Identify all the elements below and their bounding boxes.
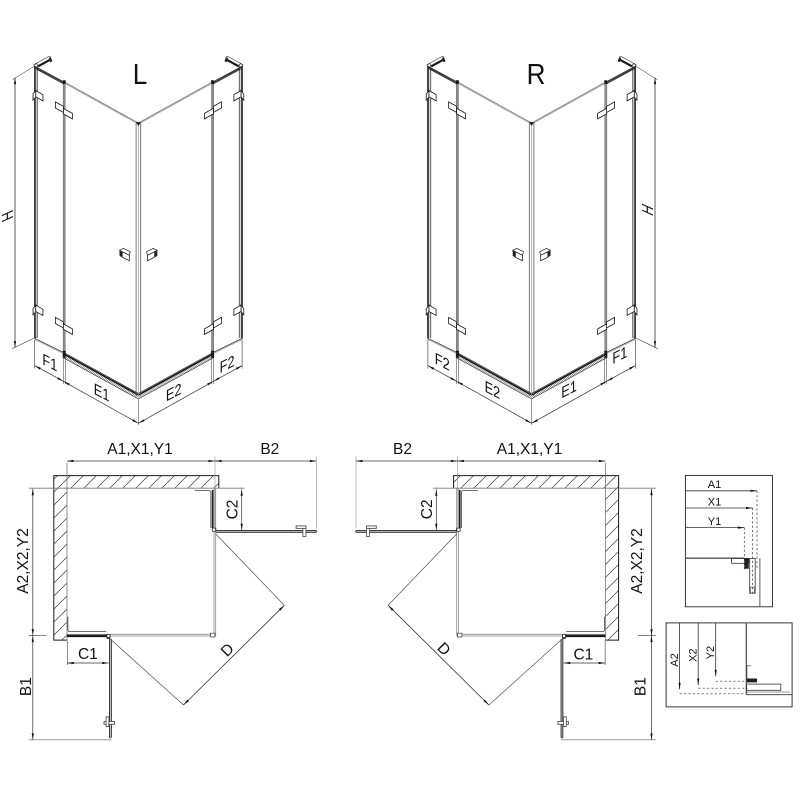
svg-text:D: D (434, 639, 454, 659)
svg-text:E2: E2 (485, 378, 501, 404)
svg-text:H: H (0, 207, 17, 224)
svg-text:B2: B2 (260, 441, 279, 458)
svg-text:H: H (639, 202, 657, 219)
svg-text:E1: E1 (94, 380, 110, 406)
svg-text:D: D (218, 640, 238, 660)
svg-text:X2: X2 (688, 648, 700, 661)
svg-text:X1: X1 (708, 496, 721, 508)
svg-text:C2: C2 (224, 500, 241, 520)
svg-text:R: R (527, 58, 546, 91)
svg-text:C2: C2 (419, 499, 436, 519)
svg-text:B1: B1 (18, 677, 35, 696)
svg-text:Y1: Y1 (708, 516, 721, 528)
svg-text:F2: F2 (220, 352, 235, 377)
svg-text:A2: A2 (669, 653, 681, 666)
svg-text:F1: F1 (42, 351, 57, 376)
svg-text:A1,X1,Y1: A1,X1,Y1 (107, 441, 173, 458)
svg-text:A1,X1,Y1: A1,X1,Y1 (497, 441, 563, 458)
svg-text:C1: C1 (78, 646, 98, 663)
svg-text:F1: F1 (612, 343, 627, 368)
svg-text:E2: E2 (166, 380, 182, 406)
svg-text:B1: B1 (633, 677, 650, 696)
svg-text:A2,X2,Y2: A2,X2,Y2 (15, 528, 32, 594)
svg-text:A1: A1 (708, 479, 721, 491)
svg-text:B2: B2 (393, 441, 412, 458)
svg-text:L: L (133, 58, 148, 91)
svg-text:F2: F2 (435, 350, 450, 375)
svg-text:A2,X2,Y2: A2,X2,Y2 (629, 528, 646, 594)
svg-text:Y2: Y2 (705, 646, 717, 659)
svg-text:C1: C1 (573, 646, 593, 663)
